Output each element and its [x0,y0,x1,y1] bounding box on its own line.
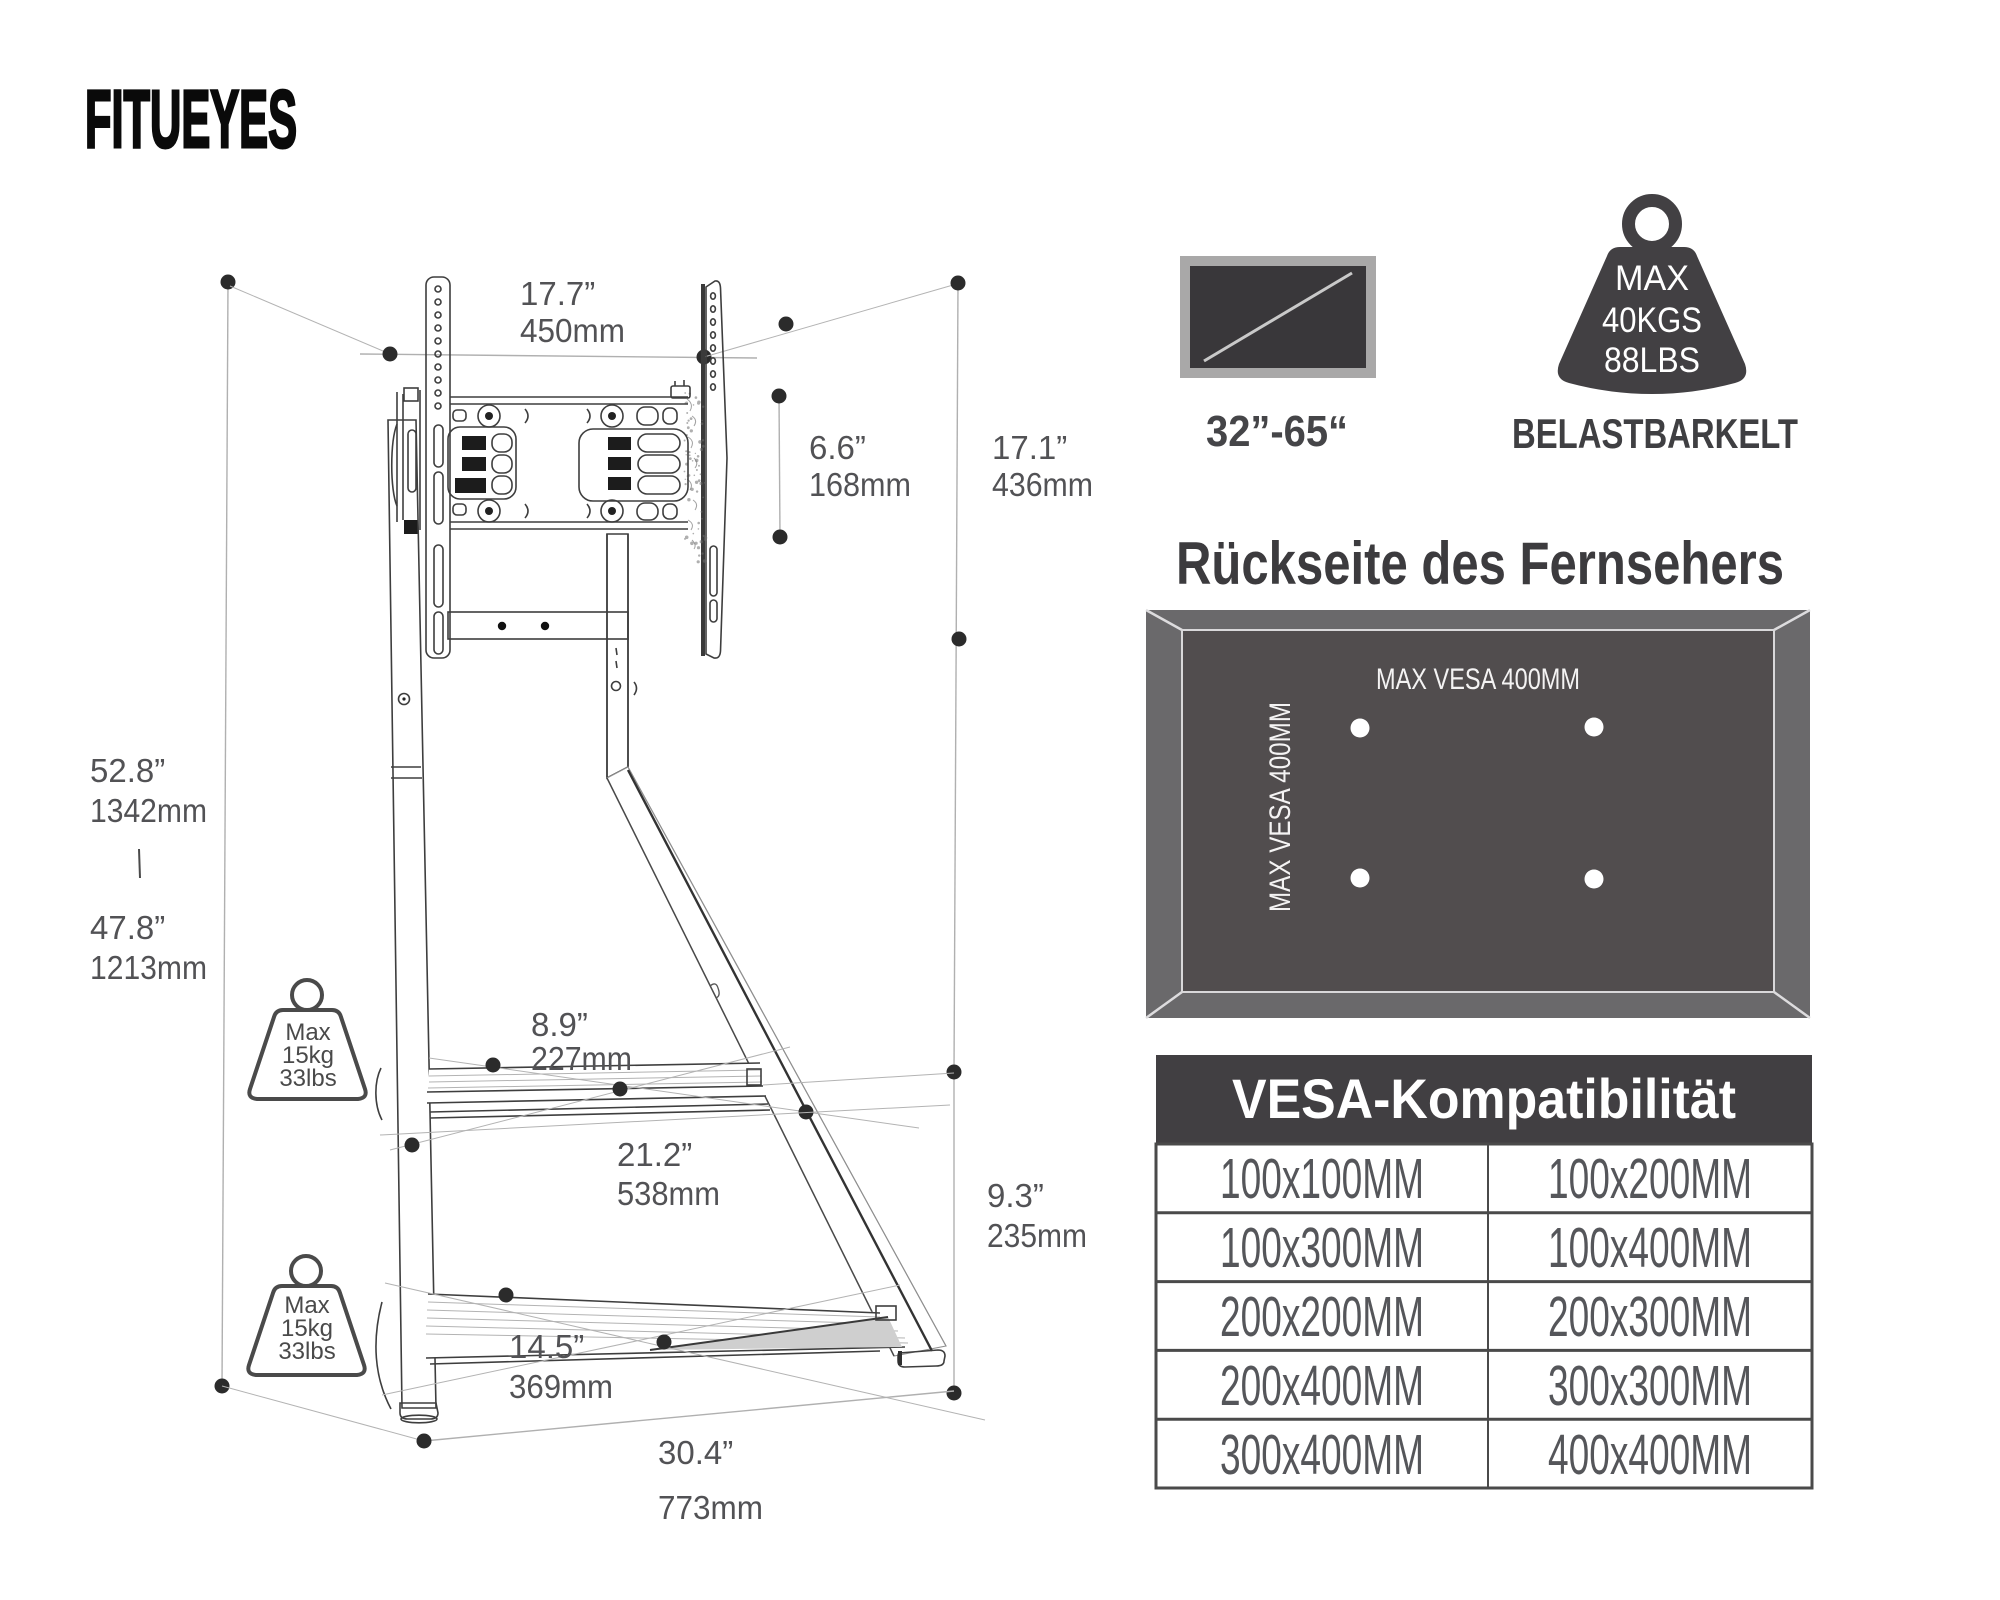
svg-text:300x300MM: 300x300MM [1548,1354,1752,1418]
svg-text:1213mm: 1213mm [90,949,207,986]
svg-text:FITUEYES: FITUEYES [85,74,297,165]
svg-text:200x200MM: 200x200MM [1220,1285,1424,1349]
svg-text:436mm: 436mm [992,466,1093,503]
svg-text:17.7”: 17.7” [520,275,595,312]
svg-text:227mm: 227mm [531,1040,632,1077]
svg-text:MAX: MAX [1615,259,1689,298]
svg-text:100x100MM: 100x100MM [1220,1147,1424,1211]
svg-text:773mm: 773mm [658,1489,763,1526]
svg-text:1342mm: 1342mm [90,792,207,829]
svg-text:Rückseite des Fernsehers: Rückseite des Fernsehers [1176,530,1784,597]
svg-text:100x200MM: 100x200MM [1548,1147,1752,1211]
svg-text:MAX VESA 400MM: MAX VESA 400MM [1376,663,1580,696]
svg-text:300x400MM: 300x400MM [1220,1423,1424,1487]
svg-text:30.4”: 30.4” [658,1434,733,1471]
svg-text:400x400MM: 400x400MM [1548,1423,1752,1487]
svg-text:VESA-Kompatibilität: VESA-Kompatibilität [1232,1067,1736,1130]
svg-text:47.8”: 47.8” [90,909,165,946]
svg-text:14.5”: 14.5” [509,1328,584,1365]
svg-text:33lbs: 33lbs [279,1065,336,1092]
svg-text:6.6”: 6.6” [809,429,866,466]
svg-text:9.3”: 9.3” [987,1177,1044,1214]
svg-text:BELASTBARKELT: BELASTBARKELT [1512,410,1798,457]
svg-text:100x300MM: 100x300MM [1220,1216,1424,1280]
svg-text:MAX VESA 400MM: MAX VESA 400MM [1264,702,1297,912]
svg-text:168mm: 168mm [809,466,911,503]
svg-text:88LBS: 88LBS [1604,341,1700,380]
svg-text:369mm: 369mm [509,1368,613,1405]
svg-text:40KGS: 40KGS [1602,301,1702,340]
svg-text:235mm: 235mm [987,1217,1087,1254]
svg-text:33lbs: 33lbs [278,1338,335,1365]
svg-text:538mm: 538mm [617,1175,720,1212]
svg-text:200x300MM: 200x300MM [1548,1285,1752,1349]
svg-text:8.9”: 8.9” [531,1006,588,1043]
svg-text:32”-65“: 32”-65“ [1206,407,1348,456]
svg-text:17.1”: 17.1” [992,429,1067,466]
svg-text:52.8”: 52.8” [90,752,165,789]
svg-text:21.2”: 21.2” [617,1136,692,1173]
svg-text:200x400MM: 200x400MM [1220,1354,1424,1418]
svg-text:100x400MM: 100x400MM [1548,1216,1752,1280]
svg-text:450mm: 450mm [520,312,625,349]
